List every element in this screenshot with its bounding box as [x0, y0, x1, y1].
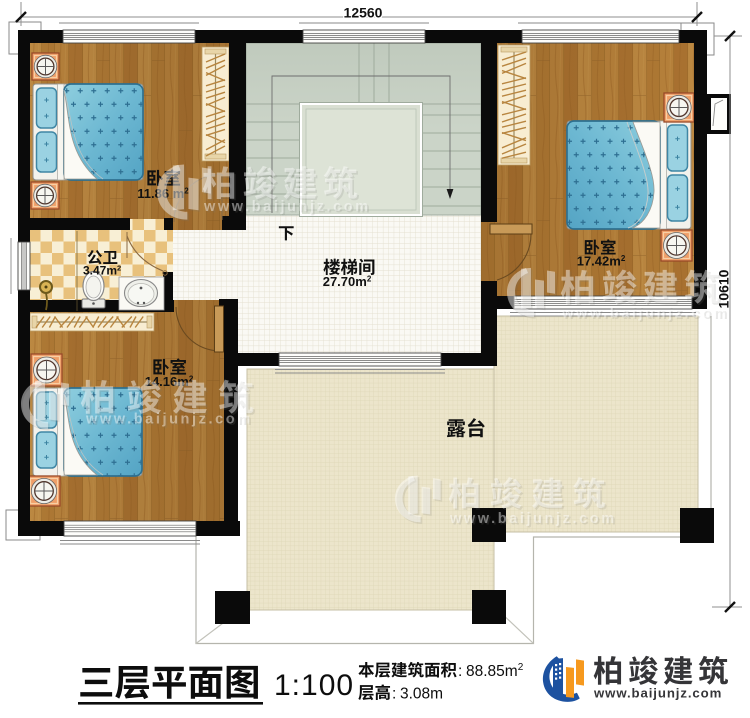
- svg-text:www.baijunjz.com: www.baijunjz.com: [561, 306, 729, 322]
- svg-text:www.baijunjz.com: www.baijunjz.com: [85, 412, 253, 428]
- svg-text:3.47m2: 3.47m2: [83, 264, 121, 278]
- svg-text:17.42m2: 17.42m2: [577, 254, 626, 269]
- svg-text:www.baijunjz.com: www.baijunjz.com: [593, 686, 722, 701]
- svg-text:1:100: 1:100: [274, 669, 354, 702]
- svg-text:3.08m: 3.08m: [400, 686, 443, 703]
- svg-text:27.70m2: 27.70m2: [323, 274, 372, 289]
- svg-text:www.baijunjz.com: www.baijunjz.com: [203, 199, 371, 215]
- svg-text:www.baijunjz.com: www.baijunjz.com: [449, 511, 617, 527]
- svg-text::: :: [392, 686, 396, 703]
- svg-text:12560: 12560: [344, 5, 383, 21]
- svg-text:10610: 10610: [716, 269, 732, 308]
- svg-text:88.85m2: 88.85m2: [466, 662, 524, 680]
- svg-text::: :: [458, 663, 462, 680]
